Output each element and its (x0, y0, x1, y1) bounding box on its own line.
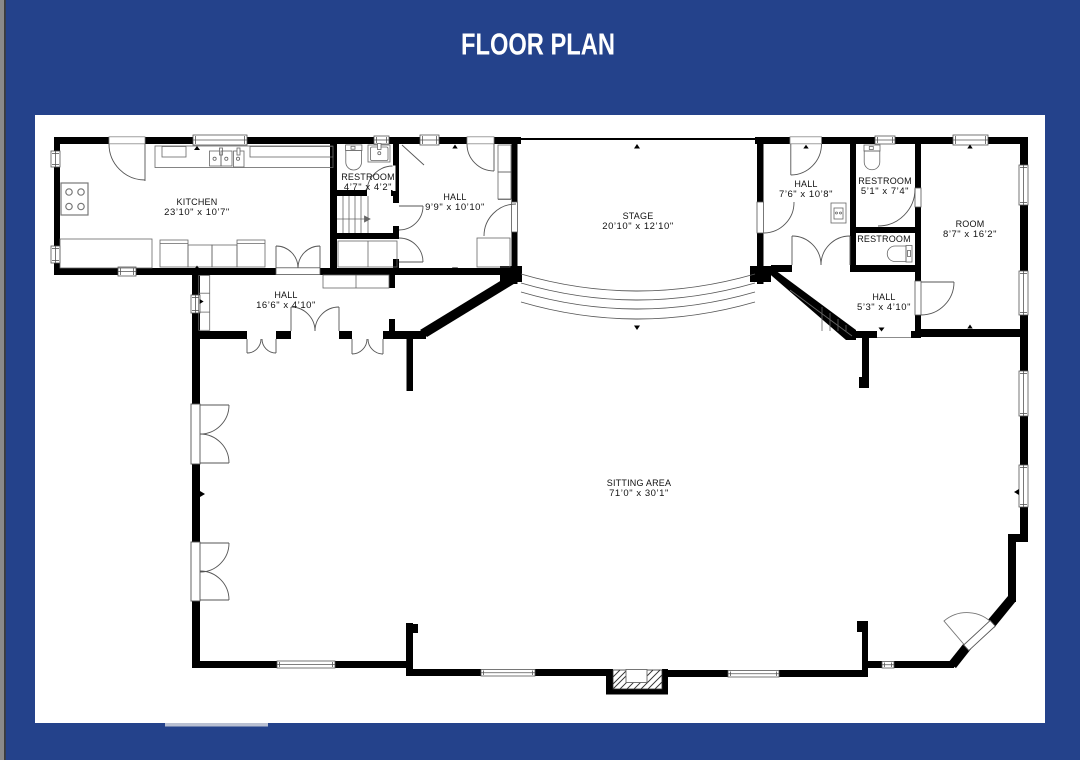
svg-text:HALL: HALL (794, 179, 817, 189)
svg-text:KITCHEN: KITCHEN (177, 197, 218, 207)
svg-text:5’3" x 4’10": 5’3" x 4’10" (857, 302, 911, 313)
svg-text:16’6" x 4’10": 16’6" x 4’10" (256, 300, 316, 311)
svg-text:23’10" x 10’7": 23’10" x 10’7" (164, 207, 230, 218)
svg-text:ROOM: ROOM (956, 219, 985, 229)
svg-text:8’7" x 16’2": 8’7" x 16’2" (943, 229, 997, 240)
svg-text:HALL: HALL (872, 292, 895, 302)
svg-text:RESTROOM: RESTROOM (857, 234, 911, 244)
svg-text:RESTROOM: RESTROOM (858, 176, 912, 186)
svg-text:STAGE: STAGE (623, 211, 654, 221)
svg-text:5’1" x 7’4": 5’1" x 7’4" (861, 186, 909, 197)
svg-text:4’7" x 4’2": 4’7" x 4’2" (344, 182, 392, 193)
svg-text:71’0" x 30’1": 71’0" x 30’1" (609, 488, 669, 499)
svg-text:SITTING AREA: SITTING AREA (607, 478, 671, 488)
svg-text:HALL: HALL (274, 290, 297, 300)
svg-text:FLOOR PLAN: FLOOR PLAN (461, 26, 615, 61)
svg-text:HALL: HALL (443, 192, 466, 202)
svg-text:RESTROOM: RESTROOM (341, 172, 395, 182)
svg-text:9’9" x 10’10": 9’9" x 10’10" (425, 202, 485, 213)
svg-text:20’10" x 12’10": 20’10" x 12’10" (602, 221, 674, 232)
svg-text:7’6" x 10’8": 7’6" x 10’8" (779, 189, 833, 200)
